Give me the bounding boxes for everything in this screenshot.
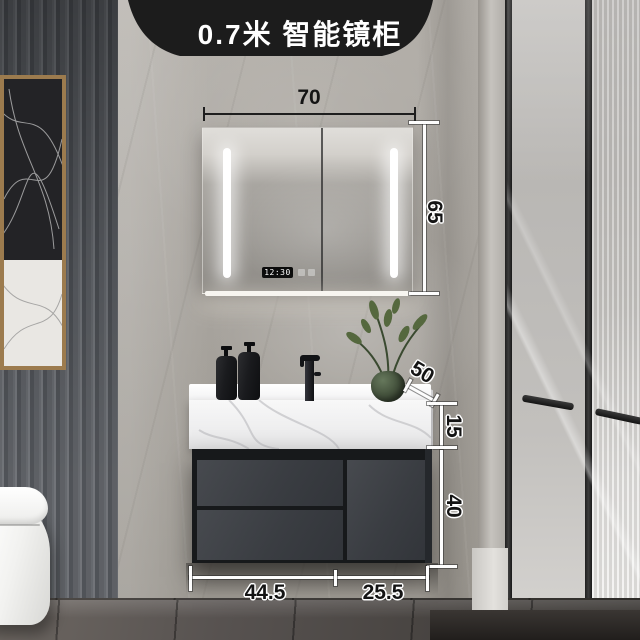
mirror-clock-display: 12:30 xyxy=(262,267,293,278)
drawer-lower xyxy=(197,510,343,560)
dimension-label-mirror-width: 70 xyxy=(209,86,409,110)
shower-threshold xyxy=(472,548,508,612)
dimension-label-mirror-height: 65 xyxy=(422,192,446,232)
soap-bottle xyxy=(238,352,260,400)
dimension-tick xyxy=(409,292,439,295)
dimension-tick xyxy=(189,566,192,591)
defog-icon xyxy=(298,269,305,276)
marble-counter-front xyxy=(189,400,431,449)
dimension-label-left-width: 44.5 xyxy=(200,581,330,605)
marble-pillar xyxy=(478,0,507,612)
shower-glass xyxy=(512,0,585,615)
soap-pump xyxy=(221,346,232,350)
dimension-label-cabinet-height: 40 xyxy=(441,489,465,523)
soap-pump xyxy=(244,342,255,346)
led-strip-left xyxy=(223,148,231,278)
soap-bottle xyxy=(216,356,237,400)
soap-pump xyxy=(247,345,251,352)
vanity-cabinet xyxy=(192,449,430,563)
dimension-label-counter-rise: 15 xyxy=(441,409,465,443)
led-strip-right xyxy=(390,148,398,278)
shower-frame-left xyxy=(505,0,512,615)
faucet-handle xyxy=(314,372,321,376)
dimension-label-right-width: 25.5 xyxy=(337,581,429,605)
marble-vein-lines xyxy=(189,400,431,449)
dimension-tick xyxy=(427,402,457,405)
faucet-tip xyxy=(300,358,304,367)
soap-pump xyxy=(224,349,228,356)
dimension-tick xyxy=(427,565,457,568)
fluted-glass-panel xyxy=(592,0,640,615)
drawer-upper xyxy=(197,460,343,506)
cabinet-side-face xyxy=(425,449,432,563)
shower-frame-right xyxy=(585,0,592,615)
mirror-cabinet: 12:30 xyxy=(202,127,413,294)
banner-title: 0.7米 智能镜柜 xyxy=(175,13,425,53)
product-image: 12:30 xyxy=(0,0,640,640)
plant-vase xyxy=(371,371,405,402)
dimension-line-bottom xyxy=(189,576,429,579)
dimension-tick xyxy=(427,446,457,449)
faucet xyxy=(305,357,314,401)
light-icon xyxy=(308,269,315,276)
toilet-lid xyxy=(0,487,48,525)
artwork-scribbles xyxy=(4,79,62,366)
mirror-door-seam xyxy=(321,128,323,293)
shower-floor-shadow xyxy=(430,610,640,640)
dimension-tick xyxy=(203,107,205,121)
framed-artwork xyxy=(0,75,66,370)
dimension-tick xyxy=(414,107,416,121)
dimension-tick xyxy=(409,121,439,124)
dimension-line-70 xyxy=(203,113,416,115)
toilet-seam xyxy=(0,524,40,526)
cabinet-door xyxy=(347,460,425,560)
